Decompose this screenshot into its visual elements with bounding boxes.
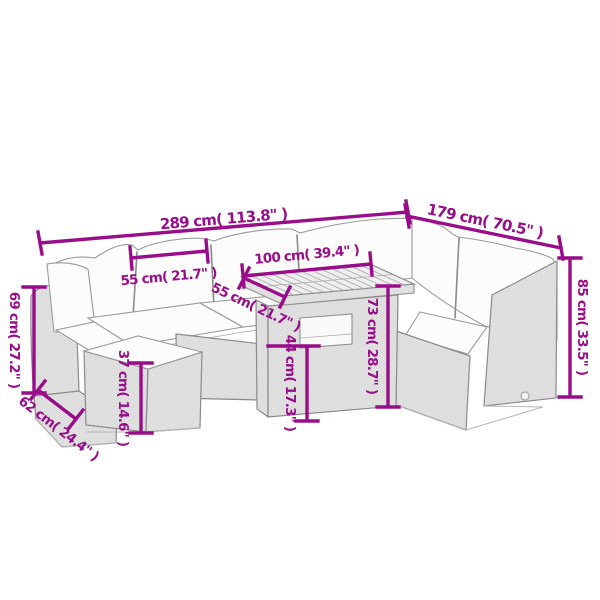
product-dimension-diagram: 289 cm( 113.8" ) 179 cm( 70.5" ) 55 cm( … [0, 0, 600, 600]
dim-label-stool-height: 37 cm( 14.6" ) [115, 350, 131, 447]
dim-label-back-height: 69 cm( 27.2" ) [6, 292, 22, 389]
dim-label-total-height: 85 cm( 33.5" ) [574, 279, 590, 376]
dim-label-table-height: 73 cm( 28.7" ) [364, 298, 380, 395]
arm-rivet [521, 392, 529, 400]
dim-label-table-lower-height: 44 cm( 17.3" ) [282, 335, 298, 432]
diagram-canvas: 289 cm( 113.8" ) 179 cm( 70.5" ) 55 cm( … [0, 0, 600, 600]
table-shelf-niche [300, 314, 352, 348]
left-corner-back-cushion [47, 263, 95, 332]
